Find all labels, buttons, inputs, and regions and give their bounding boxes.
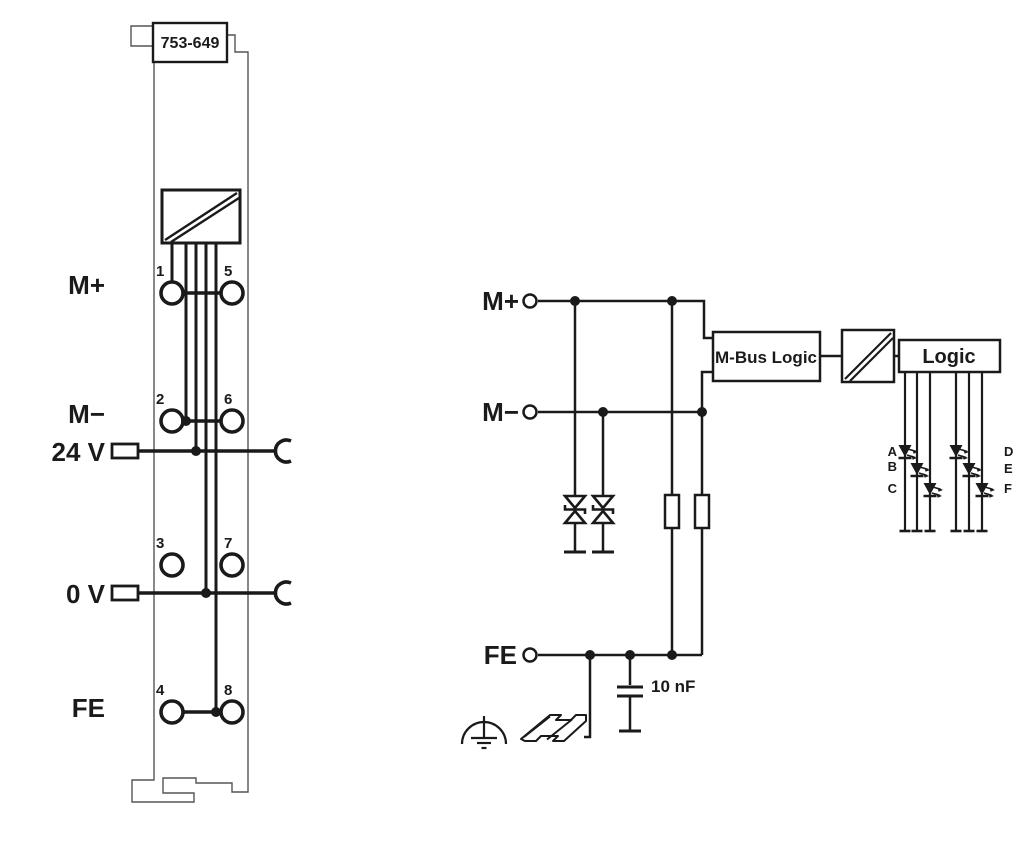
m-minus-to-logic xyxy=(702,372,713,412)
terminal-8 xyxy=(221,701,243,723)
io-module: 753-649 xyxy=(52,23,292,802)
logic-label: Logic xyxy=(922,346,975,368)
schematic-label-fe: FE xyxy=(484,640,517,670)
module-internal-wires xyxy=(172,243,216,712)
part-number-text: 753-649 xyxy=(161,35,220,52)
terminal-number-3: 3 xyxy=(156,535,164,552)
resistor-2 xyxy=(695,495,709,528)
diagram-canvas: 753-649 xyxy=(0,0,1024,858)
module-label-24v: 24 V xyxy=(52,437,106,467)
terminal-number-6: 6 xyxy=(224,391,232,408)
terminal-number-5: 5 xyxy=(224,263,232,280)
schematic-junction-dots xyxy=(570,296,707,660)
resistor-1 xyxy=(665,495,679,528)
module-label-m-minus: M− xyxy=(68,399,105,429)
terminal-2 xyxy=(161,410,183,432)
led-d xyxy=(950,445,970,460)
module-side-labels: M+ M− 24 V 0 V FE xyxy=(52,270,106,723)
m-plus-wire xyxy=(538,301,713,338)
led-label-d: D xyxy=(1004,444,1013,459)
jumper-contact-left-24v xyxy=(112,444,138,458)
module-label-m-plus: M+ xyxy=(68,270,105,300)
led-c xyxy=(924,483,944,498)
schematic-isolation-symbol xyxy=(842,330,894,382)
jumper-contact-right-0v xyxy=(275,582,291,604)
terminal-4 xyxy=(161,701,183,723)
led-e xyxy=(963,463,983,478)
capacitor-value-label: 10 nF xyxy=(651,677,695,696)
schematic-label-m-minus: M− xyxy=(482,397,519,427)
terminal-fe xyxy=(524,649,537,662)
mbus-logic-label: M-Bus Logic xyxy=(715,348,817,367)
terminal-5 xyxy=(221,282,243,304)
module-label-0v: 0 V xyxy=(66,579,106,609)
led-label-b: B xyxy=(888,459,897,474)
module-label-fe: FE xyxy=(72,693,105,723)
led-f xyxy=(976,483,996,498)
terminal-m-plus xyxy=(524,295,537,308)
led-lines xyxy=(905,372,982,530)
terminal-number-2: 2 xyxy=(156,391,164,408)
schematic-label-m-plus: M+ xyxy=(482,286,519,316)
jumper-contact-left-0v xyxy=(112,586,138,600)
led-b xyxy=(911,463,931,478)
terminal-1 xyxy=(161,282,183,304)
led-label-e: E xyxy=(1004,461,1013,476)
din-rail-icon xyxy=(521,715,586,741)
suppressor-diode-1 xyxy=(565,496,585,523)
terminal-6 xyxy=(221,410,243,432)
power-rail-24v xyxy=(112,440,291,462)
terminal-7 xyxy=(221,554,243,576)
schematic-wires xyxy=(538,301,713,737)
wiring-diagram-page: 753-649 xyxy=(0,0,1024,858)
led-label-f: F xyxy=(1004,481,1012,496)
module-isolation-symbol xyxy=(162,190,240,243)
terminal-3 xyxy=(161,554,183,576)
terminals xyxy=(161,282,243,723)
terminal-number-8: 8 xyxy=(224,682,232,699)
led-a xyxy=(899,445,919,460)
terminal-number-4: 4 xyxy=(156,682,165,699)
input-terminals xyxy=(524,295,537,662)
suppressor-diode-2 xyxy=(593,496,613,523)
terminal-number-1: 1 xyxy=(156,263,164,280)
fe-to-rail-wire xyxy=(584,655,590,737)
terminal-number-7: 7 xyxy=(224,535,232,552)
earth-ground-icon xyxy=(462,716,506,748)
led-label-a: A xyxy=(888,444,898,459)
circuit-schematic: 10 nF M+ M− FE M-Bus Logic xyxy=(462,286,1013,748)
terminal-m-minus xyxy=(524,406,537,419)
terminal-numbers: 1 5 2 6 3 7 4 8 xyxy=(156,263,232,699)
led-label-c: C xyxy=(888,481,898,496)
jumper-contact-right-24v xyxy=(275,440,291,462)
